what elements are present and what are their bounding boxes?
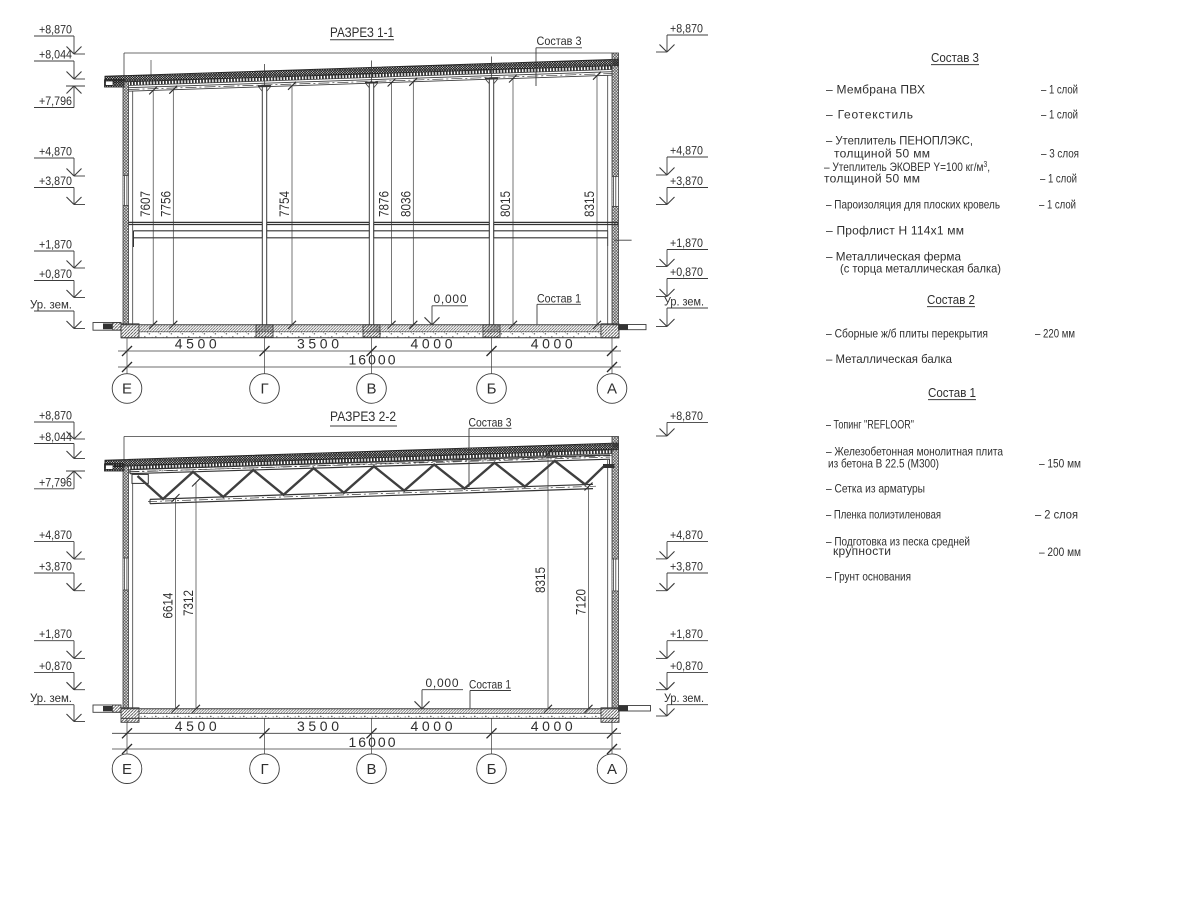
svg-text:8315: 8315: [532, 567, 548, 593]
svg-text:+8,870: +8,870: [670, 409, 703, 423]
svg-text:Г: Г: [260, 761, 268, 778]
svg-text:16000: 16000: [349, 352, 396, 368]
svg-text:+4,870: +4,870: [39, 528, 72, 542]
svg-text:7876: 7876: [376, 191, 392, 217]
svg-text:+0,870: +0,870: [670, 265, 703, 279]
svg-text:+1,870: +1,870: [39, 238, 72, 252]
svg-text:– 1 слой: – 1 слой: [1041, 83, 1078, 97]
svg-text:– 2 слоя: – 2 слоя: [1035, 508, 1078, 522]
svg-text:8015: 8015: [497, 191, 513, 217]
svg-text:+8,044: +8,044: [39, 430, 72, 444]
svg-text:Б: Б: [487, 761, 497, 778]
svg-text:– Сборные ж/б плиты перекрытия: – Сборные ж/б плиты перекрытия: [826, 327, 988, 341]
svg-text:А: А: [607, 381, 617, 398]
svg-text:+3,870: +3,870: [670, 560, 703, 574]
svg-text:– 220 мм: – 220 мм: [1035, 327, 1075, 341]
svg-text:А: А: [607, 761, 617, 778]
svg-text:– 3 слоя: – 3 слоя: [1041, 147, 1079, 161]
svg-text:+8,870: +8,870: [39, 23, 72, 37]
svg-text:из бетона В 22.5 (М300): из бетона В 22.5 (М300): [828, 457, 939, 471]
svg-text:+7,796: +7,796: [39, 94, 72, 108]
svg-text:– 1 слой: – 1 слой: [1039, 197, 1076, 211]
svg-text:7756: 7756: [157, 191, 173, 217]
svg-text:3500: 3500: [297, 718, 339, 734]
svg-text:+8,870: +8,870: [39, 409, 72, 423]
svg-text:7120: 7120: [573, 589, 589, 615]
svg-text:+4,870: +4,870: [670, 528, 703, 542]
svg-text:толщиной 50 мм: толщиной 50 мм: [834, 147, 930, 161]
svg-text:Ур. зем.: Ур. зем.: [664, 295, 704, 309]
svg-text:+1,870: +1,870: [39, 627, 72, 641]
svg-text:+1,870: +1,870: [670, 236, 703, 250]
svg-text:4000: 4000: [411, 718, 453, 734]
svg-text:8315: 8315: [581, 191, 597, 217]
svg-text:+8,870: +8,870: [670, 22, 703, 36]
svg-text:(с торца металлическая балка): (с торца металлическая балка): [840, 261, 1001, 275]
svg-text:+3,870: +3,870: [39, 174, 72, 188]
svg-text:Состав 3: Состав 3: [537, 34, 582, 48]
svg-text:7754: 7754: [276, 191, 292, 217]
svg-text:8036: 8036: [397, 191, 413, 217]
svg-text:Состав 3: Состав 3: [931, 50, 979, 65]
svg-text:В: В: [366, 761, 376, 778]
svg-text:– Утеплитель ПЕНОПЛЭКС,: – Утеплитель ПЕНОПЛЭКС,: [826, 134, 973, 148]
svg-text:РАЗРЕЗ 2-2: РАЗРЕЗ 2-2: [330, 408, 396, 424]
svg-text:– Грунт основания: – Грунт основания: [826, 570, 911, 584]
svg-text:– Профлист Н 114х1 мм: – Профлист Н 114х1 мм: [826, 224, 964, 238]
svg-text:Состав 1: Состав 1: [537, 292, 581, 306]
svg-text:7312: 7312: [180, 590, 196, 616]
svg-text:4000: 4000: [531, 718, 573, 734]
svg-text:Состав 1: Состав 1: [928, 385, 976, 400]
svg-text:+7,796: +7,796: [39, 475, 72, 489]
svg-text:– 150 мм: – 150 мм: [1039, 457, 1081, 471]
svg-text:+3,870: +3,870: [39, 560, 72, 574]
svg-text:+4,870: +4,870: [670, 144, 703, 158]
svg-text:16000: 16000: [349, 734, 396, 750]
svg-text:+0,870: +0,870: [39, 267, 72, 281]
svg-text:0,000: 0,000: [426, 676, 459, 690]
svg-text:– Пароизоляция для плоских кро: – Пароизоляция для плоских кровель: [826, 197, 1000, 211]
svg-text:4500: 4500: [175, 718, 217, 734]
svg-text:+4,870: +4,870: [39, 145, 72, 159]
svg-text:+0,870: +0,870: [39, 659, 72, 673]
svg-text:+3,870: +3,870: [670, 174, 703, 188]
svg-text:Состав 2: Состав 2: [927, 292, 975, 307]
svg-text:РАЗРЕЗ 1-1: РАЗРЕЗ 1-1: [330, 24, 394, 40]
svg-text:– 1 слой: – 1 слой: [1041, 108, 1078, 122]
svg-text:– Геотекстиль: – Геотекстиль: [826, 108, 913, 122]
svg-text:– Металлическая балка: – Металлическая балка: [826, 352, 952, 366]
svg-text:Ур. зем.: Ур. зем.: [664, 691, 704, 705]
svg-text:Ур. зем.: Ур. зем.: [30, 691, 72, 705]
svg-text:– Мембрана ПВХ: – Мембрана ПВХ: [826, 83, 925, 97]
svg-text:Ур. зем.: Ур. зем.: [30, 298, 72, 312]
svg-text:6614: 6614: [160, 592, 176, 618]
svg-text:Состав 1: Состав 1: [469, 678, 511, 692]
svg-text:крупности: крупности: [833, 544, 891, 558]
svg-text:– Топинг "REFLOOR": – Топинг "REFLOOR": [826, 417, 914, 431]
svg-text:– Сетка из арматуры: – Сетка из арматуры: [826, 482, 925, 496]
svg-text:– 1 слой: – 1 слой: [1040, 171, 1077, 185]
svg-text:Б: Б: [487, 381, 497, 398]
svg-text:толщиной 50 мм: толщиной 50 мм: [824, 171, 920, 185]
svg-text:Е: Е: [122, 381, 132, 398]
svg-text:Состав 3: Состав 3: [469, 416, 512, 430]
svg-text:В: В: [366, 381, 376, 398]
svg-text:– Пленка полиэтиленовая: – Пленка полиэтиленовая: [826, 508, 941, 522]
svg-text:+8,044: +8,044: [39, 48, 72, 62]
svg-text:– 200 мм: – 200 мм: [1039, 545, 1081, 559]
svg-text:Е: Е: [122, 761, 132, 778]
svg-text:+0,870: +0,870: [670, 659, 703, 673]
svg-text:7607: 7607: [137, 191, 153, 217]
svg-text:Г: Г: [260, 381, 268, 398]
svg-text:+1,870: +1,870: [670, 627, 703, 641]
svg-text:0,000: 0,000: [434, 292, 467, 306]
